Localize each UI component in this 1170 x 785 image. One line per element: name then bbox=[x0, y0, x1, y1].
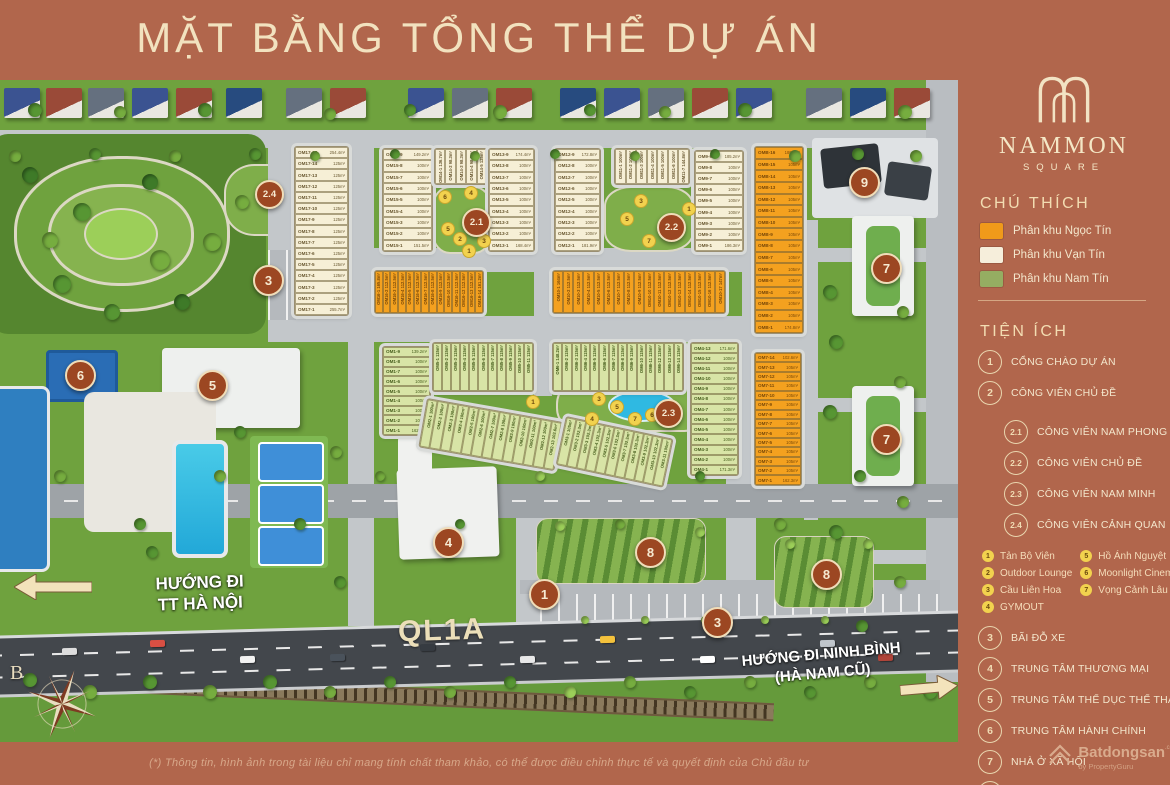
park-feature-badge-1: 1 bbox=[526, 395, 540, 409]
lot-block-OM16: OM16-1 165.8m²OM16-2 112.5m²OM16-3 112.5… bbox=[374, 270, 484, 314]
tree bbox=[42, 232, 58, 248]
map-decor: 125m² bbox=[333, 285, 345, 290]
lot-OM9-2: OM9-2100m² bbox=[695, 229, 743, 240]
lot-OM7-11: OM7-11105m² bbox=[755, 381, 801, 390]
map-decor: OM4-5 bbox=[694, 427, 708, 432]
lot-OM1-3: OM1-3100m² bbox=[383, 406, 430, 416]
map-decor: OM17-2 bbox=[298, 296, 315, 301]
lot-OM17-11: OM17-11125m² bbox=[295, 192, 348, 203]
tree bbox=[249, 148, 261, 160]
tree bbox=[73, 203, 91, 221]
lot-block-OM12: OM12-9172.8m²OM12-8100m²OM12-7100m²OM12-… bbox=[554, 148, 601, 252]
tree bbox=[584, 104, 596, 116]
map-decor: OM4-2 bbox=[694, 457, 708, 462]
lot-OM17-1: OM17-1255.7m² bbox=[295, 304, 348, 315]
road bbox=[268, 316, 742, 342]
house bbox=[226, 88, 262, 118]
map-marker-2.3: 2.3 bbox=[654, 399, 683, 428]
lot-OM17-10: OM17-10125m² bbox=[295, 203, 348, 214]
tree bbox=[555, 521, 565, 531]
lot-OM15-2: OM15-2100m² bbox=[383, 228, 432, 239]
map-decor: OM1-5 bbox=[386, 389, 400, 394]
legend-item-label: Phân khu Ngọc Tín bbox=[1013, 225, 1111, 237]
lot-OMB-2: OMB-2105m² bbox=[755, 310, 803, 322]
lot-OM16-9: OM16-9 112.5m² bbox=[437, 271, 445, 313]
tree bbox=[324, 108, 336, 120]
map-decor: OMB-5 bbox=[758, 278, 773, 283]
lot-block-OM17: OM17-15254.4m²OM17-14125m²OM17-13125m²OM… bbox=[294, 146, 349, 316]
map-decor: OM2-13 103.6m² bbox=[548, 423, 558, 455]
lot-OM12-9: OM12-9172.8m² bbox=[555, 149, 600, 160]
map-decor: 100m² bbox=[723, 417, 735, 422]
map-decor: 105m² bbox=[788, 255, 800, 260]
facility-item-6-label: TRUNG TÂM HÀNH CHÍNH bbox=[1011, 725, 1146, 737]
map-decor: OM6-6 115m² bbox=[602, 345, 607, 371]
tree bbox=[550, 149, 560, 159]
map-decor: 181.9m² bbox=[582, 243, 597, 248]
tree bbox=[53, 275, 71, 293]
map-decor: OM16-5 112.5m² bbox=[407, 273, 412, 305]
map-decor: OM16-13 112.5m² bbox=[469, 273, 474, 307]
lot-OMB-6: OMB-6105m² bbox=[755, 263, 803, 275]
map-decor: OM10-3 112.5m² bbox=[576, 273, 581, 305]
lot-OM16-4: OM16-4 112.5m² bbox=[398, 271, 406, 313]
map-decor: OM14-1 136.7m² bbox=[438, 151, 443, 183]
map-decor: OM11-1 100m² bbox=[618, 151, 623, 179]
yellow-badge-icon: 3 bbox=[982, 584, 994, 596]
map-decor: 125m² bbox=[333, 173, 345, 178]
lot-OM11-4: OM11-4 100m² bbox=[647, 149, 658, 184]
lot-OM9-1: OM9-1186.3m² bbox=[695, 240, 743, 251]
amenities-parks-list: 2.1CÔNG VIÊN NAM PHONG2.2CÔNG VIÊN CHỦ Đ… bbox=[1004, 420, 1170, 537]
map-decor: 100m² bbox=[417, 231, 429, 236]
tree bbox=[641, 616, 649, 624]
lot-OM16-2: OM16-2 112.5m² bbox=[383, 271, 391, 313]
map-decor bbox=[1047, 742, 1073, 768]
lot-OM9-5: OM9-5100m² bbox=[695, 195, 743, 206]
map-decor: OM9-3 bbox=[698, 221, 712, 226]
tree bbox=[630, 151, 640, 161]
tree bbox=[470, 151, 480, 161]
lot-OM17-9: OM17-9125m² bbox=[295, 214, 348, 225]
lot-OM15-5: OM15-5100m² bbox=[383, 194, 432, 205]
map-decor: 100m² bbox=[728, 187, 740, 192]
tree bbox=[852, 148, 864, 160]
lot-OM6-6: OM6-6 115m² bbox=[599, 343, 608, 391]
tree bbox=[821, 616, 829, 624]
lot-OM16-7: OM16-7 112.5m² bbox=[421, 271, 429, 313]
map-marker-4: 4 bbox=[433, 527, 464, 558]
arrow-left-icon bbox=[14, 574, 92, 600]
lot-OM4-3: OM4-3100m² bbox=[691, 445, 738, 455]
tennis-court bbox=[258, 484, 324, 524]
tree bbox=[404, 104, 416, 116]
lot-OMB-10: OMB-10105m² bbox=[755, 217, 803, 229]
lot-OM7-8: OM7-8105m² bbox=[755, 410, 801, 419]
map-decor: 105m² bbox=[786, 383, 798, 388]
park-item-2.2-label: CÔNG VIÊN CHỦ ĐỀ bbox=[1037, 457, 1142, 469]
lot-OM6-1: OM6-1 148.2m² bbox=[553, 343, 562, 391]
map-decor: OM7-6 bbox=[758, 431, 772, 436]
map-decor: 105m² bbox=[786, 431, 798, 436]
map-decor: OM10-1 164m² bbox=[556, 273, 561, 301]
lot-OM10-14: OM10-14 112.5m² bbox=[685, 271, 695, 313]
tree bbox=[114, 106, 126, 118]
house bbox=[604, 88, 640, 118]
map-decor: 105m² bbox=[786, 421, 798, 426]
lot-OM6-3: OM6-3 115m² bbox=[572, 343, 581, 391]
map-decor: 105m² bbox=[786, 365, 798, 370]
map-decor: 186.3m² bbox=[725, 243, 740, 248]
map-marker-2.4: 2.4 bbox=[255, 180, 284, 209]
map-decor: 100m² bbox=[723, 376, 735, 381]
map-decor: 105m² bbox=[788, 162, 800, 167]
map-decor: 149.2m² bbox=[414, 152, 429, 157]
tree bbox=[203, 233, 221, 251]
map-decor: OM4-9 bbox=[694, 386, 708, 391]
map-decor: 105m² bbox=[788, 278, 800, 283]
lot-OM10-9: OM10-9 112.5m² bbox=[634, 271, 644, 313]
map-decor: 100m² bbox=[585, 175, 597, 180]
map-decor: OM9-8 bbox=[698, 165, 712, 170]
map-decor: OM13-4 bbox=[492, 209, 509, 214]
tree bbox=[710, 149, 720, 159]
lot-OM9-4: OM9-4100m² bbox=[695, 207, 743, 218]
map-decor: 105m² bbox=[788, 232, 800, 237]
park-feature-badge-7: 7 bbox=[628, 412, 642, 426]
tree bbox=[134, 518, 146, 530]
lot-OMB-4: OMB-4105m² bbox=[755, 287, 803, 299]
map-decor: 100m² bbox=[728, 221, 740, 226]
lot-OM10-15: OM10-15 112.5m² bbox=[695, 271, 705, 313]
lot-OM16-14: OM16-14 161.2m² bbox=[475, 271, 483, 313]
road-label-ql1a: QL1A bbox=[397, 612, 486, 649]
park-feature-label: Hồ Ánh Nguyệt bbox=[1098, 551, 1166, 562]
lot-OM6-8: OM6-8 115m² bbox=[618, 343, 627, 391]
lot-OMB-3: OMB-3105m² bbox=[755, 298, 803, 310]
map-decor: OMB-10 bbox=[758, 220, 775, 225]
tree bbox=[390, 149, 400, 159]
map-decor: OM16-2 112.5m² bbox=[384, 273, 389, 305]
lot-OM7-1: OM7-1162.3m² bbox=[755, 475, 801, 484]
map-decor: 100m² bbox=[723, 407, 735, 412]
tree bbox=[198, 103, 212, 117]
map-decor: OM6-8 115m² bbox=[620, 345, 625, 371]
map-decor: OM4-13 bbox=[694, 346, 711, 351]
lot-OM15-3: OM15-3100m² bbox=[383, 217, 432, 228]
map-decor: 125m² bbox=[333, 240, 345, 245]
lot-OM16-3: OM16-3 112.5m² bbox=[390, 271, 398, 313]
map-decor: OM6-1 148.2m² bbox=[555, 345, 560, 375]
park-item-2.1-label: CÔNG VIÊN NAM PHONG bbox=[1037, 426, 1167, 438]
swimming-pool bbox=[172, 440, 228, 558]
map-decor: 125m² bbox=[333, 251, 345, 256]
number-badge-icon: 6 bbox=[978, 719, 1002, 743]
lot-OM15-6: OM15-6100m² bbox=[383, 183, 432, 194]
lot-OMB-12: OMB-12105m² bbox=[755, 194, 803, 206]
tree bbox=[823, 285, 837, 299]
lot-OM15-1: OM15-1151.5m² bbox=[383, 240, 432, 251]
yellow-badge-icon: 2 bbox=[982, 567, 994, 579]
map-decor: OM9-5 bbox=[698, 198, 712, 203]
lot-OM12-4: OM12-4100m² bbox=[555, 206, 600, 217]
map-decor: 100m² bbox=[417, 163, 429, 168]
lot-OM10-10: OM10-10 112.5m² bbox=[644, 271, 654, 313]
lot-OM4-7: OM4-7100m² bbox=[691, 404, 738, 414]
number-badge-icon: 5 bbox=[978, 688, 1002, 712]
map-decor: 100m² bbox=[519, 175, 531, 180]
map-decor: 105m² bbox=[788, 197, 800, 202]
map-decor: OM1-6 bbox=[386, 379, 400, 384]
road bbox=[742, 332, 818, 352]
tree bbox=[894, 376, 906, 388]
map-decor: OM10-5 112.5m² bbox=[596, 273, 601, 305]
map-decor: OM17-3 bbox=[298, 285, 315, 290]
lot-block-OM5: OM5-1 115m²OM5-2 115m²OM5-3 115m²OM5-4 1… bbox=[432, 342, 534, 392]
tree bbox=[898, 105, 912, 119]
map-decor: OM4-12 bbox=[694, 356, 711, 361]
park-feature-item-2: 2Outdoor Lounge bbox=[982, 567, 1072, 579]
map-decor: 100m² bbox=[585, 186, 597, 191]
number-badge-icon: 2.3 bbox=[1004, 482, 1028, 506]
map-decor: OM5-8 115m² bbox=[499, 345, 504, 371]
map-decor: 100m² bbox=[519, 209, 531, 214]
lot-OM13-8: OM13-8100m² bbox=[489, 160, 534, 171]
map-decor: OMB-2 bbox=[758, 313, 773, 318]
map-decor: OM6-9 115m² bbox=[629, 345, 634, 371]
map-decor: OM1-4 bbox=[386, 398, 400, 403]
brochure-page: MẶT BẰNG TỔNG THỂ DỰ ÁN bbox=[0, 0, 1170, 785]
map-decor: OM1-1 bbox=[386, 428, 400, 433]
lot-OM14-2: OM14-2 98.3m² bbox=[445, 149, 455, 184]
car bbox=[150, 640, 165, 647]
map-decor: 171.6m² bbox=[720, 346, 735, 351]
map-decor: OM14-3 98.3m² bbox=[459, 151, 464, 181]
map-decor: OM17-11 bbox=[298, 195, 317, 200]
map-decor: 100m² bbox=[417, 209, 429, 214]
tree bbox=[854, 470, 866, 482]
tree bbox=[444, 686, 456, 698]
map-decor: 174.4m² bbox=[516, 152, 531, 157]
lot-OM13-2: OM13-2100m² bbox=[489, 228, 534, 239]
park-item-2.4: 2.4CÔNG VIÊN CẢNH QUAN bbox=[1004, 513, 1170, 537]
tree bbox=[897, 496, 909, 508]
map-decor: OM10-6 112.5m² bbox=[606, 273, 611, 305]
lot-OM5-7: OM5-7 115m² bbox=[488, 343, 497, 391]
map-decor: 105m² bbox=[786, 440, 798, 445]
map-decor: OM13-2 bbox=[492, 231, 509, 236]
number-badge-icon: 2.4 bbox=[1004, 513, 1028, 537]
map-decor: 100m² bbox=[728, 165, 740, 170]
map-decor: 105m² bbox=[788, 301, 800, 306]
map-decor: 100m² bbox=[585, 231, 597, 236]
lot-OM17-4: OM17-4125m² bbox=[295, 270, 348, 281]
brand-subtitle: SQUARE bbox=[958, 162, 1170, 173]
map-decor: OM7-3 bbox=[758, 459, 772, 464]
lot-OM10-11: OM10-11 112.5m² bbox=[654, 271, 664, 313]
lot-OM1-7: OM1-7100m² bbox=[383, 367, 430, 377]
map-decor: 105m² bbox=[786, 402, 798, 407]
lot-OM9-7: OM9-7100m² bbox=[695, 173, 743, 184]
map-decor: 100m² bbox=[723, 427, 735, 432]
lot-OM7-9: OM7-9105m² bbox=[755, 400, 801, 409]
legend-list: Phân khu Ngọc TínPhân khu Vạn TínPhân kh… bbox=[980, 223, 1170, 287]
map-decor: OMB-14 bbox=[758, 174, 775, 179]
map-decor: 100m² bbox=[723, 356, 735, 361]
map-decor: OM16-7 112.5m² bbox=[423, 273, 428, 305]
map-decor: OM12-8 bbox=[558, 163, 575, 168]
park-feature-label: Vọng Cảnh Lâu bbox=[1098, 585, 1168, 596]
tree bbox=[829, 525, 843, 539]
map-decor: OM1-2 bbox=[386, 418, 400, 423]
map-decor: 100m² bbox=[728, 232, 740, 237]
map-decor: 100m² bbox=[415, 369, 427, 374]
lot-OM7-14: OM7-14102.6m² bbox=[755, 353, 801, 362]
tree bbox=[214, 470, 226, 482]
map-decor: OM5-7 115m² bbox=[490, 345, 495, 371]
map-decor: OM7-8 bbox=[758, 412, 772, 417]
map-decor bbox=[14, 574, 92, 600]
lot-OM1-4: OM1-4100m² bbox=[383, 396, 430, 406]
lot-OM10-13: OM10-13 112.5m² bbox=[675, 271, 685, 313]
lot-OM5-3: OM5-3 115m² bbox=[451, 343, 460, 391]
map-decor: OM10-15 112.5m² bbox=[697, 273, 702, 307]
map-decor: 168.4m² bbox=[516, 243, 531, 248]
map-decor: OM15-4 bbox=[386, 209, 403, 214]
map-marker-2.2: 2.2 bbox=[657, 213, 686, 242]
map-decor: OM15-7 bbox=[386, 175, 403, 180]
lot-OM13-3: OM13-3100m² bbox=[489, 217, 534, 228]
map-decor: OM15-6 bbox=[386, 186, 403, 191]
tree bbox=[910, 150, 922, 162]
tree bbox=[143, 675, 157, 689]
lot-OM1-5: OM1-5100m² bbox=[383, 386, 430, 396]
facility-item-6: 6TRUNG TÂM HÀNH CHÍNH bbox=[978, 719, 1170, 743]
map-decor: 151.5m² bbox=[414, 243, 429, 248]
map-decor: OM5-4 115m² bbox=[462, 345, 467, 371]
lot-OM7-4: OM7-4105m² bbox=[755, 447, 801, 456]
map-decor: 125m² bbox=[333, 206, 345, 211]
lot-OM15-7: OM15-7100m² bbox=[383, 172, 432, 183]
house bbox=[286, 88, 322, 118]
map-decor: 171.3m² bbox=[720, 467, 735, 472]
map-decor: OM15-1 bbox=[386, 243, 403, 248]
tree bbox=[504, 676, 516, 688]
lot-OM16-5: OM16-5 112.5m² bbox=[406, 271, 414, 313]
tree bbox=[615, 519, 625, 529]
tree bbox=[28, 103, 42, 117]
house bbox=[806, 88, 842, 118]
map-marker-7: 7 bbox=[871, 424, 902, 455]
map-decor: 100m² bbox=[417, 186, 429, 191]
map-decor: OM6-4 115m² bbox=[583, 345, 588, 371]
map-decor: 100m² bbox=[585, 220, 597, 225]
map-decor: OM7-7 bbox=[758, 421, 772, 426]
map-decor: OM5-2 115m² bbox=[444, 345, 449, 371]
tree bbox=[863, 539, 873, 549]
map-decor: OM12-2 bbox=[558, 231, 575, 236]
map-decor: OMB-15 bbox=[758, 162, 775, 167]
lot-OM9-3: OM9-3100m² bbox=[695, 218, 743, 229]
map-decor: OM4-10 bbox=[694, 376, 711, 381]
lot-OMB-9: OMB-9105m² bbox=[755, 228, 803, 240]
map-decor: Batdongsan.com by PropertyGuru bbox=[1078, 745, 1170, 771]
map-decor: 125m² bbox=[333, 161, 345, 166]
map-decor bbox=[14, 574, 92, 600]
map-decor: OMB-12 bbox=[758, 197, 775, 202]
number-badge-icon: 8 bbox=[978, 781, 1002, 785]
lot-OM17-5: OM17-5125m² bbox=[295, 259, 348, 270]
map-decor: OM11-5 100m² bbox=[660, 151, 665, 179]
map-decor: OM16-6 112.5m² bbox=[415, 273, 420, 305]
map-decor: OM10-17 147m² bbox=[718, 273, 723, 304]
map-decor: 105m² bbox=[788, 174, 800, 179]
car bbox=[240, 656, 255, 663]
lot-OM13-5: OM13-5100m² bbox=[489, 194, 534, 205]
facility-item-8: 8KHU TÁI ĐỊNH CƯ ( Theo quy hoạch ) bbox=[978, 781, 1170, 785]
facility-item-4-label: TRUNG TÂM THƯƠNG MẠI bbox=[1011, 663, 1149, 675]
lot-OM4-12: OM4-12100m² bbox=[691, 353, 738, 363]
map-decor: 100m² bbox=[417, 175, 429, 180]
map-decor bbox=[24, 666, 100, 742]
batdongsan-logo-icon bbox=[1047, 742, 1073, 773]
lot-OM10-17: OM10-17 147m² bbox=[715, 271, 725, 313]
lot-OM5-10: OM5-10 115m² bbox=[515, 343, 524, 391]
lot-block-OM4: OM4-13171.6m²OM4-12100m²OM4-11100m²OM4-1… bbox=[690, 342, 739, 476]
tree bbox=[695, 471, 705, 481]
park-features-list: 1Tản Bộ Viên2Outdoor Lounge3Cầu Liên Hoa… bbox=[982, 550, 1170, 613]
car bbox=[330, 654, 345, 661]
map-decor: OM17-5 bbox=[298, 262, 315, 267]
map-decor: OM6-14 115m² bbox=[676, 345, 681, 373]
park-feature-badge-1: 1 bbox=[682, 202, 696, 216]
map-decor bbox=[1040, 78, 1087, 122]
map-decor: OM17-4 bbox=[298, 273, 315, 278]
lot-OM17-2: OM17-2125m² bbox=[295, 293, 348, 304]
map-decor: 100m² bbox=[415, 379, 427, 384]
tree bbox=[493, 105, 507, 119]
map-decor: OM10-8 112.5m² bbox=[626, 273, 631, 305]
map-decor: 125m² bbox=[333, 296, 345, 301]
park-feature-item-4: 4GYMOUT bbox=[982, 601, 1072, 613]
tree bbox=[384, 676, 396, 688]
map-decor: OM17-8 bbox=[298, 229, 315, 234]
map-decor bbox=[24, 666, 100, 742]
lot-OM6-9: OM6-9 115m² bbox=[627, 343, 636, 391]
tree bbox=[804, 686, 816, 698]
park-feature-badge-6: 6 bbox=[438, 190, 452, 204]
map-decor: OM6-5 115m² bbox=[592, 345, 597, 371]
map-decor: 100m² bbox=[417, 197, 429, 202]
lot-OM12-1: OM12-1181.9m² bbox=[555, 240, 600, 251]
yellow-badge-icon: 4 bbox=[982, 601, 994, 613]
legend-item: Phân khu Vạn Tín bbox=[980, 247, 1170, 263]
tree bbox=[150, 250, 170, 270]
map-decor: OM16-10 112.5m² bbox=[446, 273, 451, 307]
map-decor: OM6-3 115m² bbox=[574, 345, 579, 371]
lot-OM5-5: OM5-5 115m² bbox=[469, 343, 478, 391]
park-feature-badge-7: 7 bbox=[642, 234, 656, 248]
lot-OMB-5: OMB-5105m² bbox=[755, 275, 803, 287]
lot-OM5-4: OM5-4 115m² bbox=[460, 343, 469, 391]
map-decor: 100m² bbox=[415, 389, 427, 394]
map-decor: OM4-6 bbox=[694, 417, 708, 422]
tree bbox=[203, 685, 217, 699]
number-badge-icon: 1 bbox=[978, 350, 1002, 374]
map-decor: OM12-9 bbox=[558, 152, 575, 157]
legend-item-label: Phân khu Nam Tín bbox=[1013, 273, 1109, 285]
map-decor: OM5-1 115m² bbox=[435, 345, 440, 371]
